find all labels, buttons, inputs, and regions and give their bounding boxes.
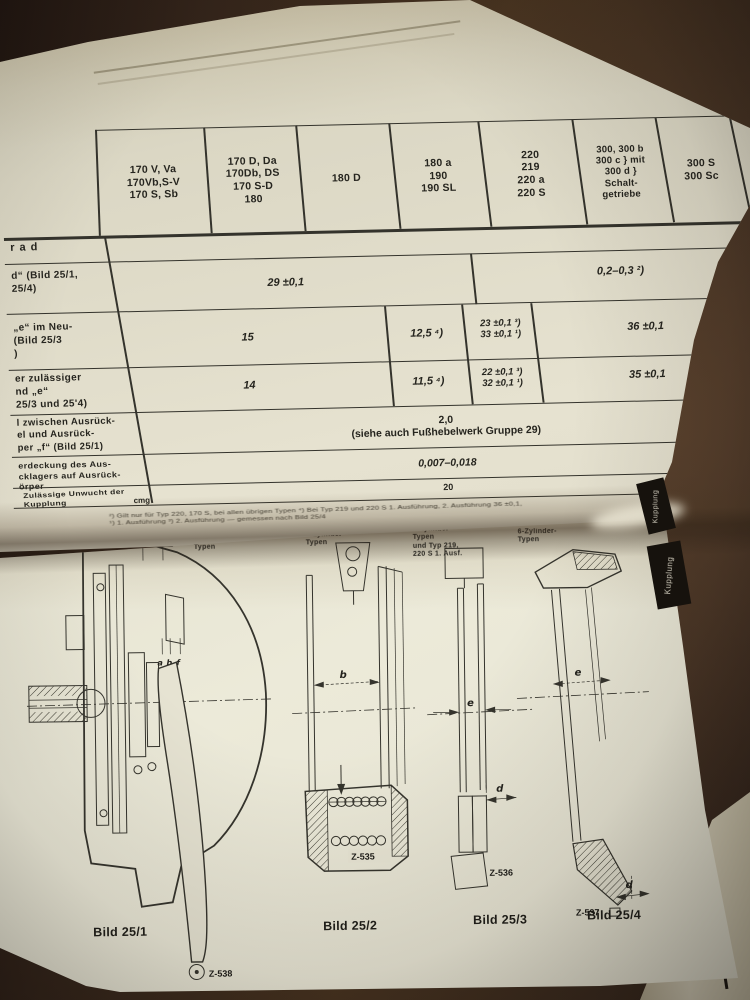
row1-value-main: 29 ±0,1 [105, 262, 466, 304]
row3-v4: 35 ±0,1 [537, 357, 750, 392]
header-col-180a-190: 180 a 190 190 SL [392, 125, 485, 227]
fig4-clutch-section: e d Z-537 [515, 541, 655, 923]
margin-tab-upper-label: Kupplung [653, 489, 660, 523]
row3-v1: 14 [109, 367, 390, 403]
fig3-ref: Z-536 [489, 868, 513, 878]
row1-value-right: 0,2–0,3 ²) [475, 251, 750, 292]
fig1-caption: Bild 25/1 [93, 925, 147, 940]
photo-of-open-manual: Gruppe [0, 0, 750, 1000]
row3-v3: 22 ±0,1 ³) 32 ±0,1 ¹) [464, 358, 541, 400]
header-col-300: 300, 300 b 300 c } mit 300 d } Schalt- g… [577, 121, 665, 223]
section-header: rad [10, 241, 43, 254]
row2-v1: 15 [107, 317, 388, 357]
row4-value: 2,0 (siehe auch Fußhebelwerk Gruppe 29) [110, 400, 750, 451]
fig4-dim-d: d [626, 880, 634, 891]
fig3-dim-e: e [467, 698, 474, 709]
header-col-170d: 170 D, Da 170Db, DS 170 S-D 180 [205, 129, 301, 231]
fig2-clutch-section: b Z-535 [290, 538, 420, 875]
specs-table: 170 V, Va 170Vb,S-V 170 S, Sb 170 D, Da … [0, 94, 750, 541]
header-col-300s: 300 S 300 Sc [662, 119, 741, 221]
page-stack-edge [98, 33, 455, 85]
fig1-ref: Z-538 [209, 968, 233, 978]
fig2-caption: Bild 25/2 [323, 918, 377, 933]
row3-v2: 11,5 ⁴) [389, 366, 468, 398]
header-col-220: 220 219 220 a 220 S [482, 123, 580, 225]
fig1-clutch-cross-section: a b f Z-538 [25, 533, 281, 991]
margin-tab-lower-label: Kupplung [663, 556, 675, 594]
header-col-170v: 170 V, Va 170Vb,S-V 170 S, Sb [100, 131, 207, 233]
table-line [737, 302, 750, 395]
fig3-dim-d: d [496, 784, 504, 795]
row2-v3: 23 ±0,1 ³) 33 ±0,1 ¹) [462, 308, 540, 352]
fig4-caption: Bild 25/4 [587, 908, 641, 923]
row2-v2: 12,5 ⁴) [387, 316, 466, 352]
fig4-dim-e: e [575, 668, 582, 679]
fig3-caption: Bild 25/3 [473, 912, 527, 927]
fig2-ref: Z-535 [351, 851, 375, 861]
page-stack-edge [94, 20, 461, 73]
header-col-180d: 180 D [298, 127, 395, 229]
fig1-dim-a: a [157, 658, 163, 667]
fig2-dim-b: b [340, 670, 347, 681]
table-line [95, 130, 100, 236]
row2-v4: 36 ±0,1 [535, 307, 750, 346]
